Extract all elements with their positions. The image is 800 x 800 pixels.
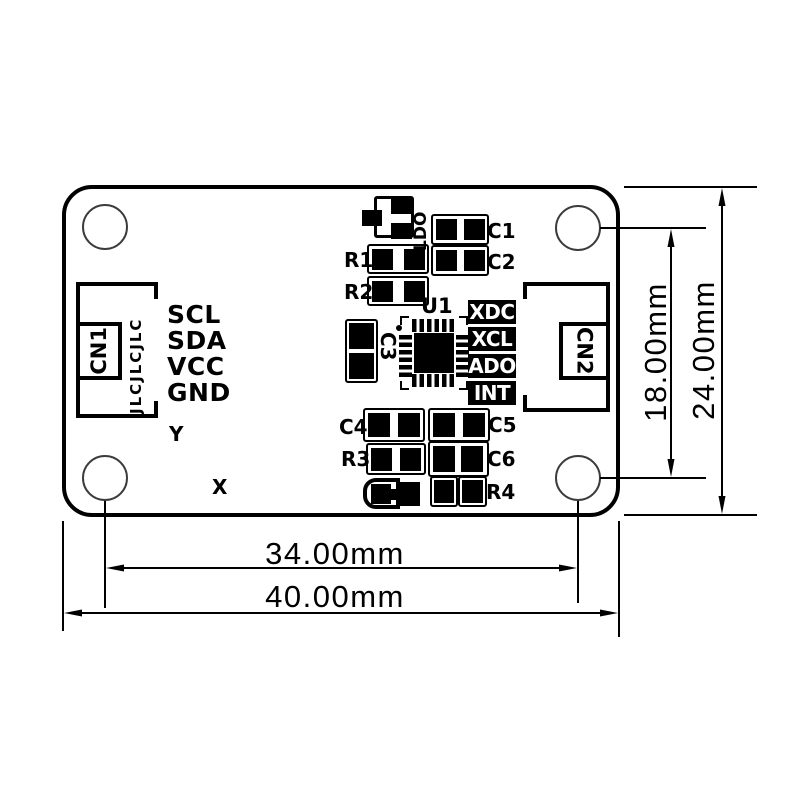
- arrowhead: [668, 229, 675, 247]
- arrowhead: [600, 610, 618, 617]
- arrowhead: [106, 565, 124, 572]
- arrowhead: [559, 565, 577, 572]
- dimension-text-40mm: 40.00mm: [235, 582, 435, 612]
- dimension-text-34mm: 34.00mm: [235, 539, 435, 569]
- pcb-dimension-drawing: CN1 JLCJLCJLC SCL SDA VCC GND Y X CN2 LD…: [0, 0, 800, 800]
- arrowhead: [719, 496, 726, 514]
- arrowhead: [719, 188, 726, 206]
- dimension-text-24mm: 24.00mm: [689, 265, 719, 435]
- arrowhead: [668, 459, 675, 477]
- arrowhead: [64, 610, 82, 617]
- dimension-text-18mm: 18.00mm: [641, 267, 671, 437]
- dimension-overlay: [0, 0, 800, 800]
